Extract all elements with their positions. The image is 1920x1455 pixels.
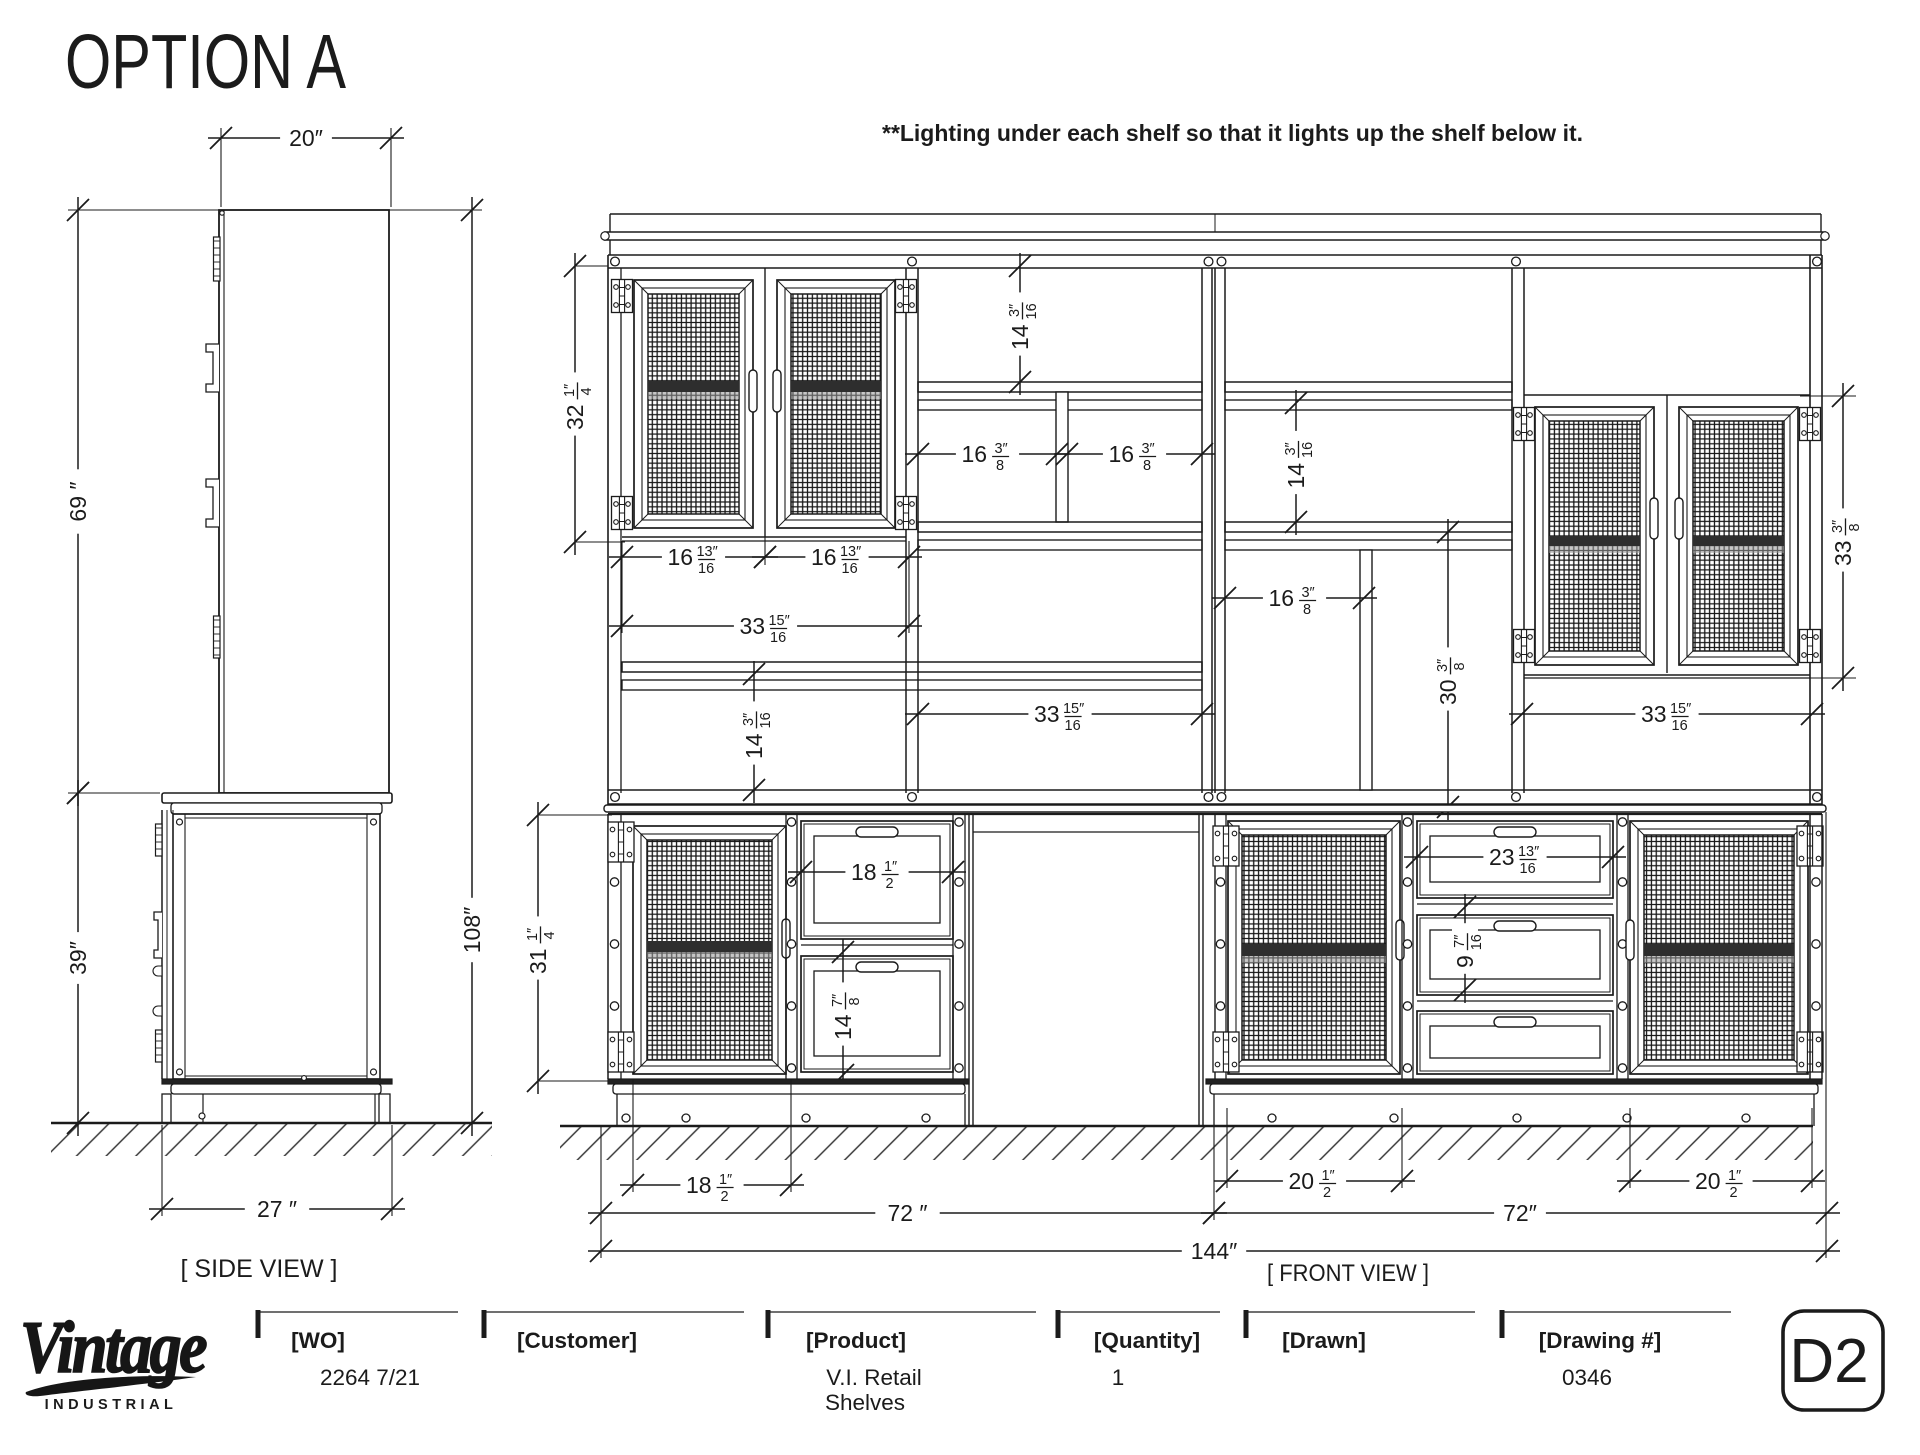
- svg-text:16: 16: [1520, 861, 1536, 877]
- svg-text:18: 18: [686, 1172, 712, 1198]
- svg-text:32: 32: [562, 404, 588, 430]
- svg-text:8: 8: [1143, 458, 1151, 474]
- svg-text:16: 16: [1065, 718, 1081, 734]
- svg-text:31: 31: [525, 948, 551, 974]
- svg-text:16: 16: [1269, 585, 1295, 611]
- svg-text:3″: 3″: [1141, 441, 1154, 457]
- svg-text:8: 8: [1303, 602, 1311, 618]
- svg-text:14: 14: [830, 1014, 856, 1040]
- svg-text:16: 16: [842, 561, 858, 577]
- svg-text:D2: D2: [1789, 1327, 1868, 1396]
- svg-text:14: 14: [1007, 324, 1033, 350]
- svg-text:[Quantity]: [Quantity]: [1094, 1328, 1200, 1353]
- svg-text:[Drawn]: [Drawn]: [1282, 1328, 1366, 1353]
- svg-text:3″: 3″: [1830, 520, 1846, 533]
- svg-text:16: 16: [811, 544, 837, 570]
- svg-text:15″: 15″: [1063, 701, 1084, 717]
- svg-text:8: 8: [847, 997, 863, 1005]
- svg-text:3″: 3″: [994, 441, 1007, 457]
- svg-text:15″: 15″: [1670, 701, 1691, 717]
- svg-text:1″: 1″: [525, 928, 541, 941]
- svg-text:OPTION A: OPTION A: [65, 19, 346, 105]
- svg-text:72″: 72″: [1503, 1200, 1537, 1226]
- svg-text:3″: 3″: [741, 713, 757, 726]
- svg-text:8: 8: [1847, 523, 1863, 531]
- svg-text:13″: 13″: [1518, 844, 1539, 860]
- svg-text:20: 20: [1695, 1168, 1721, 1194]
- svg-text:15″: 15″: [768, 613, 789, 629]
- svg-text:[Drawing #]: [Drawing #]: [1539, 1328, 1662, 1353]
- svg-text:[ SIDE VIEW ]: [ SIDE VIEW ]: [181, 1255, 338, 1283]
- svg-text:16: 16: [1109, 441, 1135, 467]
- svg-text:69 ″: 69 ″: [65, 481, 91, 521]
- svg-text:13″: 13″: [840, 544, 861, 560]
- svg-text:1″: 1″: [562, 384, 578, 397]
- svg-text:Shelves: Shelves: [825, 1390, 905, 1415]
- svg-text:1: 1: [1112, 1365, 1125, 1390]
- svg-text:3″: 3″: [1301, 585, 1314, 601]
- svg-text:14: 14: [1283, 463, 1309, 489]
- svg-text:23: 23: [1489, 844, 1515, 870]
- svg-text:33: 33: [1034, 701, 1060, 727]
- svg-text:108″: 108″: [459, 907, 485, 954]
- svg-text:16: 16: [668, 544, 694, 570]
- svg-text:27 ″: 27 ″: [257, 1196, 297, 1222]
- svg-text:39″: 39″: [65, 941, 91, 975]
- svg-text:1″: 1″: [719, 1172, 732, 1188]
- svg-text:1″: 1″: [1321, 1168, 1334, 1184]
- svg-text:[Product]: [Product]: [806, 1328, 906, 1353]
- svg-text:1″: 1″: [1728, 1168, 1741, 1184]
- svg-text:18: 18: [851, 859, 877, 885]
- svg-text:2264 7/21: 2264 7/21: [320, 1365, 420, 1390]
- svg-text:2: 2: [1730, 1185, 1738, 1201]
- svg-text:16: 16: [1024, 303, 1040, 319]
- svg-text:16: 16: [770, 630, 786, 646]
- svg-text:7″: 7″: [1452, 935, 1468, 948]
- svg-text:2: 2: [721, 1189, 729, 1205]
- svg-text:3″: 3″: [1283, 442, 1299, 455]
- svg-text:14: 14: [741, 733, 767, 759]
- svg-text:V.I. Retail: V.I. Retail: [826, 1365, 921, 1390]
- svg-text:16: 16: [1672, 718, 1688, 734]
- svg-text:33: 33: [1641, 701, 1667, 727]
- svg-text:30: 30: [1435, 679, 1461, 705]
- svg-text:33: 33: [740, 613, 766, 639]
- svg-text:3″: 3″: [1435, 659, 1451, 672]
- svg-text:4: 4: [542, 931, 558, 939]
- svg-text:2: 2: [886, 876, 894, 892]
- svg-text:**Lighting under each shelf so: **Lighting under each shelf so that it l…: [882, 120, 1583, 146]
- svg-text:INDUSTRIAL: INDUSTRIAL: [45, 1397, 178, 1413]
- svg-text:33: 33: [1830, 540, 1856, 566]
- svg-text:4: 4: [579, 387, 595, 395]
- svg-text:3″: 3″: [1007, 304, 1023, 317]
- svg-text:[ FRONT VIEW ]: [ FRONT VIEW ]: [1267, 1260, 1429, 1287]
- svg-text:144″: 144″: [1191, 1238, 1238, 1264]
- svg-text:20: 20: [1289, 1168, 1315, 1194]
- svg-text:8: 8: [996, 458, 1004, 474]
- svg-text:16: 16: [758, 712, 774, 728]
- svg-text:16: 16: [962, 441, 988, 467]
- svg-text:7″: 7″: [830, 994, 846, 1007]
- svg-text:20″: 20″: [289, 125, 323, 151]
- svg-text:2: 2: [1323, 1185, 1331, 1201]
- svg-text:9: 9: [1452, 955, 1478, 968]
- svg-text:16: 16: [1300, 442, 1316, 458]
- svg-text:16: 16: [698, 561, 714, 577]
- svg-text:[WO]: [WO]: [291, 1328, 345, 1353]
- svg-text:[Customer]: [Customer]: [517, 1328, 637, 1353]
- svg-text:16: 16: [1469, 934, 1485, 950]
- svg-text:0346: 0346: [1562, 1365, 1612, 1390]
- svg-text:8: 8: [1452, 662, 1468, 670]
- svg-text:72 ″: 72 ″: [887, 1200, 927, 1226]
- svg-text:1″: 1″: [884, 859, 897, 875]
- svg-text:13″: 13″: [696, 544, 717, 560]
